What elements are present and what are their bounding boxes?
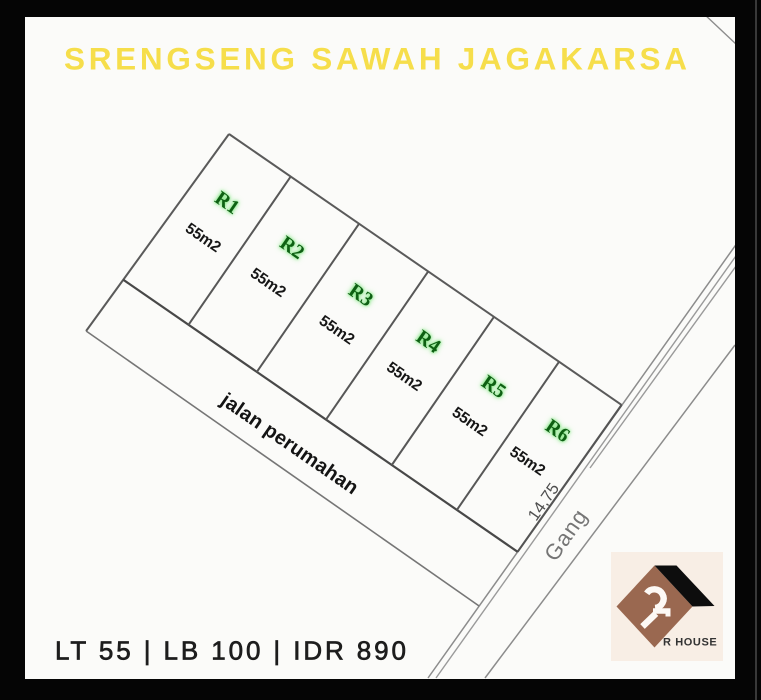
svg-text:LT 55 | LB 100 | IDR 890: LT 55 | LB 100 | IDR 890 (55, 636, 406, 666)
svg-text:R HOUSE: R HOUSE (663, 637, 717, 649)
svg-text:SRENGSENG SAWAH JAGAKARSA: SRENGSENG SAWAH JAGAKARSA (64, 41, 687, 77)
